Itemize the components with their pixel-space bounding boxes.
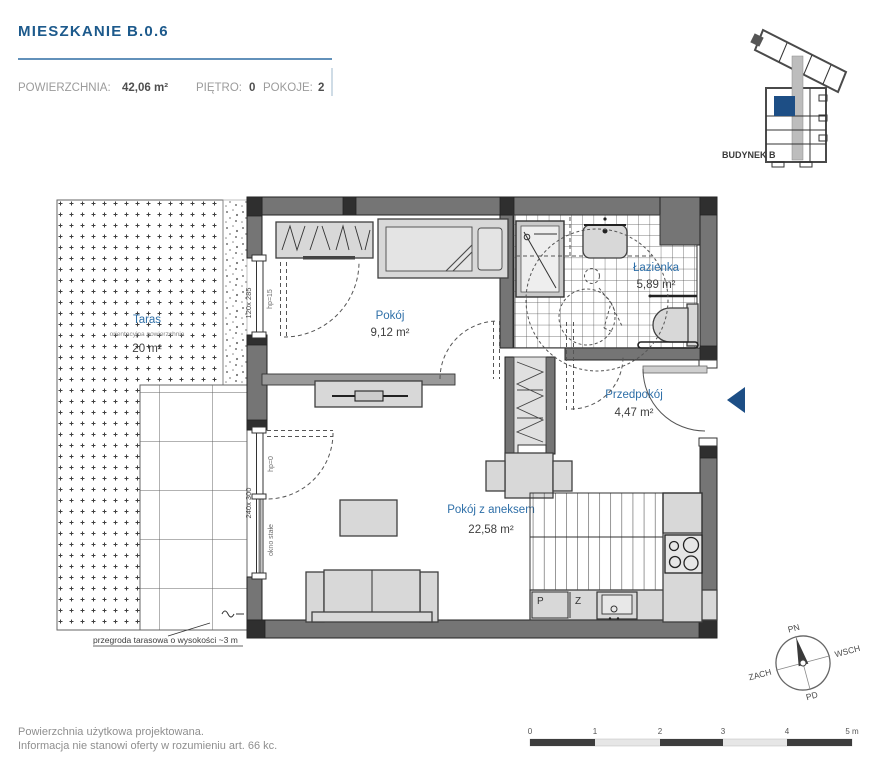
bathroom-area: 5,89 m² — [637, 279, 676, 291]
scale-tick-1: 1 — [593, 727, 598, 736]
terrace-name: Taras — [133, 314, 161, 326]
terrace-area: 20 m² — [132, 343, 162, 355]
fixed-window-label: okno stałe — [268, 524, 275, 556]
entrance-door-leaf — [643, 366, 707, 373]
wall-bathroom-bottom — [565, 348, 717, 360]
livingroom-door-leaf — [267, 431, 333, 437]
living-name: Pokój z aneksem — [447, 504, 535, 516]
wall-closet-left — [505, 357, 514, 454]
living-room: Pokój z aneksem 22,58 m² — [306, 500, 535, 622]
compass-north: PN — [787, 622, 801, 635]
hall-name: Przedpokój — [605, 389, 663, 401]
scale-end-label: 5 m — [845, 727, 859, 736]
scale-tick-3: 3 — [721, 727, 726, 736]
unit-number: B.0.6 — [127, 23, 169, 40]
wall-top — [255, 197, 717, 215]
building-minimap: BUDYNEK B — [722, 30, 846, 167]
window-upper-hp: hp=15 — [267, 289, 274, 309]
bedroom-name: Pokój — [376, 310, 405, 322]
wall-closet-right — [546, 357, 555, 454]
livingroom-door-swing — [267, 433, 333, 499]
scale-bar: 0 1 2 3 4 5 m — [528, 727, 859, 746]
window-lower-hp: hp=0 — [268, 456, 275, 472]
sofa-back — [312, 612, 432, 622]
area-value: 42,06 m² — [122, 82, 168, 94]
kitchen-floor — [530, 493, 663, 590]
wall-right-upper — [700, 197, 717, 360]
scale-tick-0: 0 — [528, 727, 533, 736]
bedroom-door-swing — [440, 321, 498, 379]
footer-line1: Powierzchnia użytkowa projektowana. — [18, 726, 204, 738]
footer-line2: Informacja nie stanowi oferty w rozumien… — [18, 740, 277, 752]
floor-value: 0 — [249, 82, 255, 94]
washer-label: P — [537, 596, 544, 607]
floor-plan-page: MIESZKANIE B.0.6 POWIERZCHNIA: 42,06 m² … — [0, 0, 870, 775]
compass-south: PD — [805, 689, 819, 702]
bathroom-door-swing — [571, 357, 623, 409]
window-lower-size: 240x 300 — [244, 488, 253, 519]
header: MIESZKANIE B.0.6 POWIERZCHNIA: 42,06 m² … — [18, 23, 332, 96]
bed-pillow — [478, 228, 502, 270]
minimap-unit-highlight — [774, 96, 795, 116]
scale-tick-2: 2 — [658, 727, 663, 736]
dishwasher-label: Z — [575, 596, 581, 607]
scale-tick-4: 4 — [785, 727, 790, 736]
terrace-door-swing — [284, 262, 359, 337]
compass-east: WSCH — [834, 643, 862, 659]
rooms-label: POKOJE: — [263, 82, 313, 94]
compass-west: ZACH — [747, 667, 772, 683]
entrance-arrow-icon — [727, 387, 745, 413]
footer: Powierzchnia użytkowa projektowana. Info… — [18, 726, 277, 752]
rooms-value: 2 — [318, 82, 324, 94]
building-label: BUDYNEK B — [722, 150, 776, 160]
bedroom-door-leaf — [494, 321, 500, 379]
bathroom-name: Łazienka — [633, 262, 680, 274]
hall-area: 4,47 m² — [615, 407, 654, 419]
chair-right — [553, 461, 572, 491]
floor-label: PIĘTRO: — [196, 82, 242, 94]
living-area: 22,58 m² — [468, 524, 514, 536]
dining-table — [505, 453, 553, 498]
bedroom-area: 9,12 m² — [371, 327, 410, 339]
terrace-partition-note: przegroda tarasowa o wysokości ~3 m — [93, 635, 238, 645]
toilet-bowl — [653, 308, 688, 342]
kitchen: P Z — [530, 493, 717, 622]
area-label: POWIERZCHNIA: — [18, 82, 111, 94]
wall-bottom — [247, 620, 717, 638]
page-title: MIESZKANIE — [18, 23, 123, 40]
compass-rose: PN WSCH PD ZACH — [738, 608, 870, 715]
terrace: Taras orientacyjna powierzchnia 20 m² pr… — [57, 200, 247, 646]
door-jamb-bottom — [699, 438, 717, 446]
coffee-table — [340, 500, 397, 536]
terrace-door-leaf — [281, 262, 287, 337]
chair-left — [486, 461, 505, 491]
terrace-note-label: orientacyjna powierzchnia — [110, 331, 185, 338]
window-upper-size: 120x 285 — [244, 288, 253, 319]
